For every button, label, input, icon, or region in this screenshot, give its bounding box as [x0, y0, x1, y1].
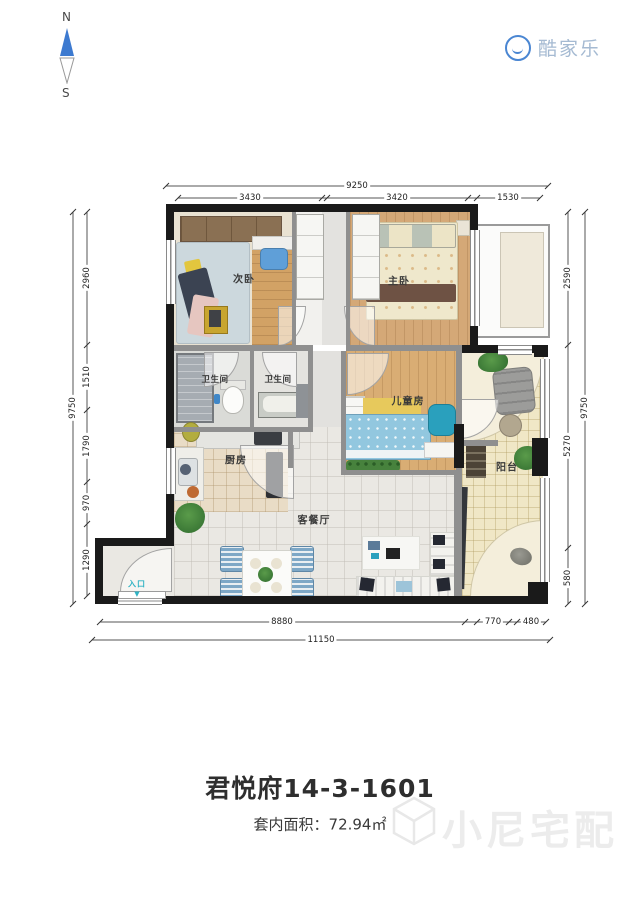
area-text: 套内面积：72.94㎡	[254, 814, 387, 835]
watermark-text: 小尼宅配	[442, 798, 618, 856]
dim-left-seg-4: 970	[82, 493, 92, 513]
room-label-bathroom-left: 卫生间	[201, 373, 228, 385]
dim-left-seg-3: 1790	[82, 433, 92, 459]
room-label-children-room: 儿童房	[392, 393, 425, 408]
dim-left-seg-1: 2960	[82, 265, 92, 291]
plan-title: 君悦府14-3-1601	[205, 769, 435, 805]
area-value: 72.94㎡	[329, 816, 387, 834]
dim-right-seg-1: 2590	[563, 265, 573, 291]
dim-bottom-seg-1: 8880	[269, 617, 295, 627]
dim-right-seg-3: 580	[563, 568, 573, 588]
dim-right-total: 9750	[580, 395, 590, 421]
floorplan-page: N S 酷家乐	[0, 0, 640, 905]
dim-left-seg-2: 1510	[82, 364, 92, 390]
room-label-kitchen: 厨房	[225, 452, 247, 467]
dim-left-total: 9750	[68, 395, 78, 421]
dim-left-seg-5: 1290	[82, 547, 92, 573]
dim-bottom-seg-2: 770	[483, 617, 503, 627]
dim-top-seg-1: 3430	[237, 193, 263, 203]
floor-plan: 次卧 主卧 卫生间 卫生间 儿童房 厨房 客餐厅 阳台 入口 ▼	[0, 0, 640, 660]
dimension-lines	[0, 0, 640, 660]
dim-top-seg-3: 1530	[495, 193, 521, 203]
dim-top-seg-2: 3420	[384, 193, 410, 203]
area-label: 套内面积：	[254, 816, 329, 834]
room-label-master-bedroom: 主卧	[388, 273, 410, 288]
room-label-entrance: 入口	[128, 579, 146, 590]
room-label-bathroom-right: 卫生间	[264, 373, 291, 385]
room-label-balcony: 阳台	[496, 459, 518, 474]
dim-right-seg-2: 5270	[563, 433, 573, 459]
room-label-secondary-bedroom: 次卧	[233, 271, 255, 286]
dim-bottom-total: 11150	[305, 635, 336, 645]
dim-top-total: 9250	[344, 181, 370, 191]
room-label-living-dining: 客餐厅	[298, 512, 331, 527]
entrance-arrow-icon: ▼	[134, 590, 139, 598]
dim-bottom-seg-3: 480	[521, 617, 541, 627]
